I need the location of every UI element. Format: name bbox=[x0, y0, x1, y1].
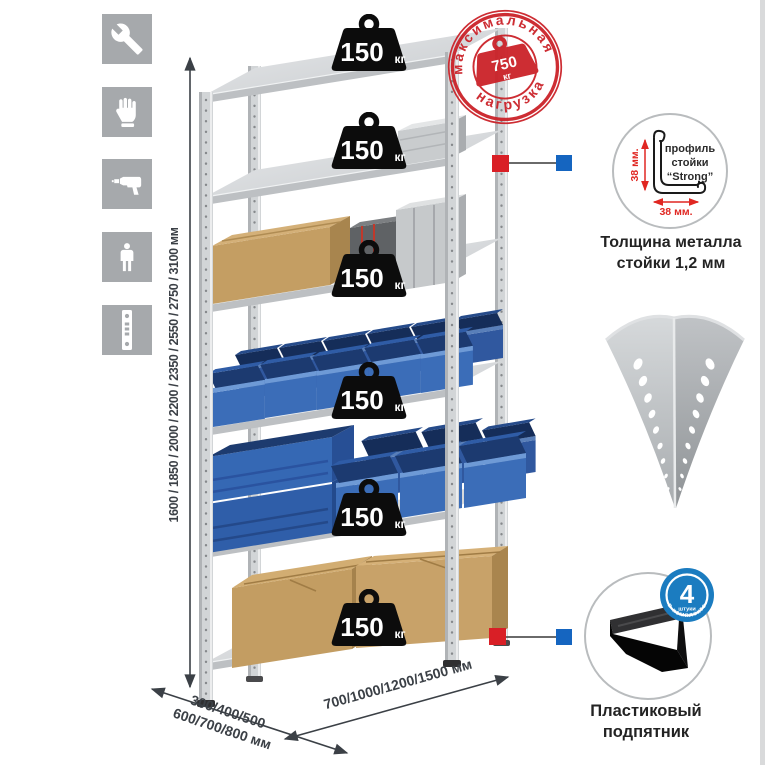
foot-marker-red bbox=[489, 628, 506, 645]
profile-label-3: “Strong” bbox=[667, 171, 713, 183]
shelf-load-weight-2: 150 кг bbox=[316, 112, 422, 170]
angle-post-image bbox=[596, 296, 754, 526]
load-value: 150 bbox=[340, 135, 383, 165]
profile-caption: Толщина металла стойки 1,2 мм bbox=[586, 233, 756, 275]
front-right-post bbox=[445, 52, 459, 662]
profile-label-2: стойки bbox=[671, 157, 708, 169]
load-unit: кг bbox=[394, 52, 405, 66]
load-value: 150 bbox=[340, 612, 383, 642]
load-value: 150 bbox=[340, 37, 383, 67]
badge-quantity-value: 4 bbox=[680, 579, 695, 609]
profile-label-1: профиль bbox=[665, 143, 715, 155]
foot-caption-line2: подпятник bbox=[566, 722, 726, 743]
product-infographic: 1600 / 1850 / 2000 / 2200 / 2350 / 2550 … bbox=[0, 0, 765, 765]
shelf-load-weight-5: 150 кг bbox=[316, 479, 422, 537]
load-unit: кг bbox=[394, 150, 405, 164]
load-unit: кг bbox=[394, 400, 405, 414]
foot-marker-blue bbox=[556, 629, 572, 645]
front-left-post bbox=[199, 92, 213, 702]
profile-detail-circle: 38 мм. 38 мм. профиль стойки “Strong” bbox=[612, 113, 728, 229]
profile-dim-vertical: 38 мм. bbox=[629, 148, 641, 181]
load-unit: кг bbox=[394, 627, 405, 641]
height-dimension-label: 1600 / 1850 / 2000 / 2200 / 2350 / 2550 … bbox=[167, 205, 185, 545]
foot-caption-line1: Пластиковый bbox=[566, 701, 726, 722]
load-value: 150 bbox=[340, 263, 383, 293]
foot-caption: Пластиковый подпятник bbox=[566, 701, 726, 744]
shelf-load-weight-1: 150 кг bbox=[316, 14, 422, 72]
load-unit: кг bbox=[394, 517, 405, 531]
page-edge-strip bbox=[760, 0, 765, 765]
shelf-load-weight-3: 150 кг bbox=[316, 240, 422, 298]
profile-caption-line1: Толщина металла bbox=[586, 233, 756, 254]
profile-caption-line2: стойки 1,2 мм bbox=[586, 254, 756, 275]
profile-marker-red bbox=[492, 155, 509, 172]
profile-dim-horizontal: 38 мм. bbox=[659, 206, 692, 218]
shelf-load-weight-6: 150 кг bbox=[316, 589, 422, 647]
quantity-badge: 4 штуки в комплекте bbox=[659, 567, 715, 623]
load-value: 150 bbox=[340, 502, 383, 532]
shelf-load-weight-4: 150 кг bbox=[316, 362, 422, 420]
load-value: 150 bbox=[340, 385, 383, 415]
profile-marker-blue bbox=[556, 155, 572, 171]
load-unit: кг bbox=[394, 278, 405, 292]
